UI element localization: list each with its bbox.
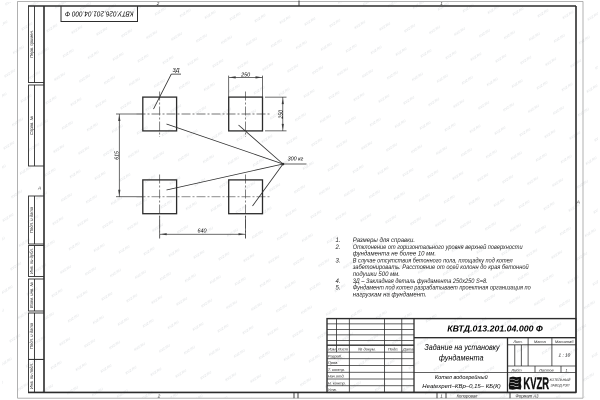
svg-text:В случае отсутствия бетонного: В случае отсутствия бетонного пола, площ… <box>353 258 514 264</box>
svg-text:3.: 3. <box>335 258 340 264</box>
svg-text:Лист: Лист <box>510 367 522 372</box>
svg-text:250: 250 <box>240 72 250 78</box>
svg-text:5.: 5. <box>335 286 340 292</box>
svg-text:300 кг: 300 кг <box>288 156 304 162</box>
svg-text:КОТЕЛЬНЫЙ: КОТЕЛЬНЫЙ <box>550 378 571 382</box>
svg-text:забетонировать. Расстояние от: забетонировать. Расстояние от осей колон… <box>352 264 530 271</box>
svg-text:1: 1 <box>440 1 443 6</box>
svg-text:нагрузкам на фундамент.: нагрузкам на фундамент. <box>353 292 427 298</box>
svg-text:Лит.: Лит. <box>512 339 522 344</box>
svg-text:фундамента: фундамента <box>439 353 484 362</box>
svg-text:А: А <box>576 200 580 205</box>
svg-text:Фундамент под котел разрабатыв: Фундамент под котел разрабатывает проект… <box>353 286 532 292</box>
svg-text:Листов: Листов <box>538 367 554 372</box>
svg-text:2.: 2. <box>334 245 340 251</box>
svg-text:3Д – Закладная деталь фундамен: 3Д – Закладная деталь фундамента 250x250… <box>353 279 488 285</box>
svg-text:КВТУ.026.201.04.000 Ф: КВТУ.026.201.04.000 Ф <box>65 10 134 17</box>
svg-text:Справ. №: Справ. № <box>29 116 34 135</box>
svg-text:подушки 500 мм.: подушки 500 мм. <box>353 272 400 278</box>
svg-text:Взам. инв. №: Взам. инв. № <box>29 282 34 308</box>
svg-text:Подп.: Подп. <box>388 347 399 352</box>
svg-text:615: 615 <box>115 151 121 160</box>
svg-text:Масса: Масса <box>534 339 547 344</box>
svg-text:А: А <box>37 186 41 191</box>
svg-text:ЗАВОД РЭП: ЗАВОД РЭП <box>551 384 571 388</box>
svg-text:Н. контр.: Н. контр. <box>328 380 346 385</box>
svg-text:Дата: Дата <box>402 347 414 352</box>
svg-text:Heatexpert–КВр–0,15– КБ(К): Heatexpert–КВр–0,15– КБ(К) <box>422 384 501 390</box>
svg-text:№ докум.: № докум. <box>358 347 376 352</box>
svg-text:Формат А3: Формат А3 <box>516 393 540 398</box>
svg-text:Изм: Изм <box>328 347 336 352</box>
svg-text:Отклонение от горизонтального: Отклонение от горизонтального уровня вер… <box>353 244 524 251</box>
svg-text:Подп. и дата: Подп. и дата <box>29 206 34 233</box>
svg-text:Инв. № дубл.: Инв. № дубл. <box>29 248 34 274</box>
svg-text:1 : 10: 1 : 10 <box>559 353 571 358</box>
svg-text:КВТД.013.201.04.000 Ф: КВТД.013.201.04.000 Ф <box>447 324 543 333</box>
svg-text:Пров.: Пров. <box>328 360 339 365</box>
svg-text:Нач.отд.: Нач.отд. <box>328 374 345 379</box>
svg-text:Разраб.: Разраб. <box>328 354 342 359</box>
svg-text:Масштаб: Масштаб <box>555 339 574 344</box>
svg-text:Размеры для справки.: Размеры для справки. <box>353 238 415 244</box>
svg-text:Перв. примен.: Перв. примен. <box>29 30 34 58</box>
svg-text:1: 1 <box>440 393 442 398</box>
svg-text:Лист: Лист <box>337 347 349 352</box>
svg-text:250: 250 <box>278 110 284 120</box>
svg-text:Инв. № подл.: Инв. № подл. <box>29 363 34 389</box>
svg-text:3Д: 3Д <box>172 68 179 74</box>
svg-text:1.: 1. <box>335 238 340 244</box>
svg-text:Подп. и дата: Подп. и дата <box>29 322 34 349</box>
svg-text:Задание на установку: Задание на установку <box>424 343 500 352</box>
svg-text:Котел водогрейный: Котел водогрейный <box>435 374 488 381</box>
svg-text:4.: 4. <box>335 279 340 285</box>
svg-text:2: 2 <box>156 1 160 6</box>
svg-text:KVZR: KVZR <box>523 374 549 393</box>
svg-text:640: 640 <box>198 228 207 234</box>
svg-text:Т. контр.: Т. контр. <box>328 367 345 372</box>
svg-text:Утв.: Утв. <box>328 387 337 392</box>
svg-text:2: 2 <box>157 394 161 399</box>
svg-text:1: 1 <box>565 367 567 372</box>
svg-text:фундамента не более 10 мм.: фундамента не более 10 мм. <box>353 252 436 258</box>
svg-text:Копировал: Копировал <box>457 393 478 398</box>
